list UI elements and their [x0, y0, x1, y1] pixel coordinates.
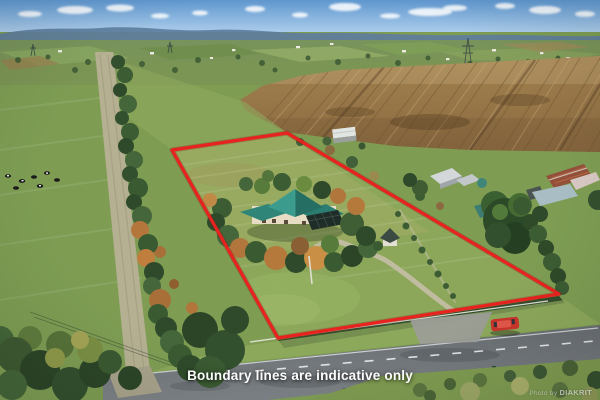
- watermark-prefix: Photo by: [529, 390, 557, 397]
- photo-watermark: Photo by DIAKRIT: [529, 388, 592, 397]
- white-field-shed: [332, 127, 357, 144]
- aerial-photo: Boundary lines are indicative only Photo…: [0, 0, 600, 400]
- water-tank: [477, 178, 487, 188]
- sky: [0, 0, 600, 32]
- watermark-brand: DIAKRIT: [559, 388, 592, 397]
- aerial-photo-canvas: [0, 0, 600, 400]
- boundary-disclaimer-text: Boundary lines are indicative only: [187, 368, 413, 383]
